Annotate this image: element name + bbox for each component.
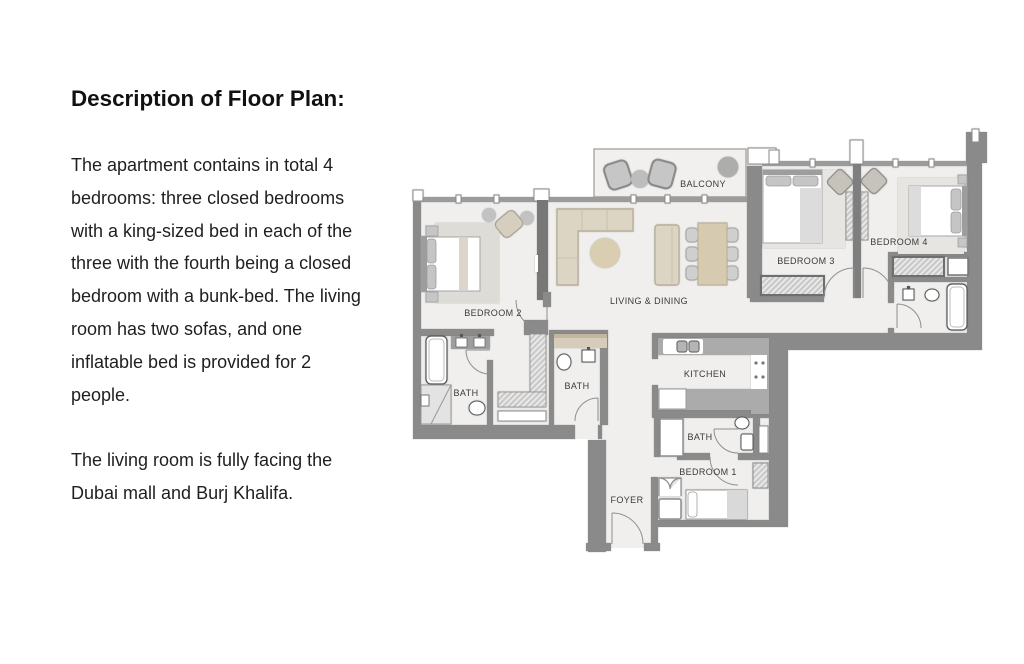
- svg-text:FOYER: FOYER: [610, 495, 643, 505]
- svg-text:BALCONY: BALCONY: [680, 179, 726, 189]
- svg-text:BATH: BATH: [565, 381, 590, 391]
- svg-text:BEDROOM 3: BEDROOM 3: [777, 256, 835, 266]
- svg-text:BEDROOM 2: BEDROOM 2: [464, 308, 522, 318]
- svg-text:BEDROOM 4: BEDROOM 4: [870, 237, 928, 247]
- svg-text:LIVING & DINING: LIVING & DINING: [610, 296, 688, 306]
- svg-text:KITCHEN: KITCHEN: [684, 369, 726, 379]
- svg-text:BEDROOM 1: BEDROOM 1: [679, 467, 737, 477]
- svg-text:BATH: BATH: [454, 388, 479, 398]
- svg-text:BATH: BATH: [688, 432, 713, 442]
